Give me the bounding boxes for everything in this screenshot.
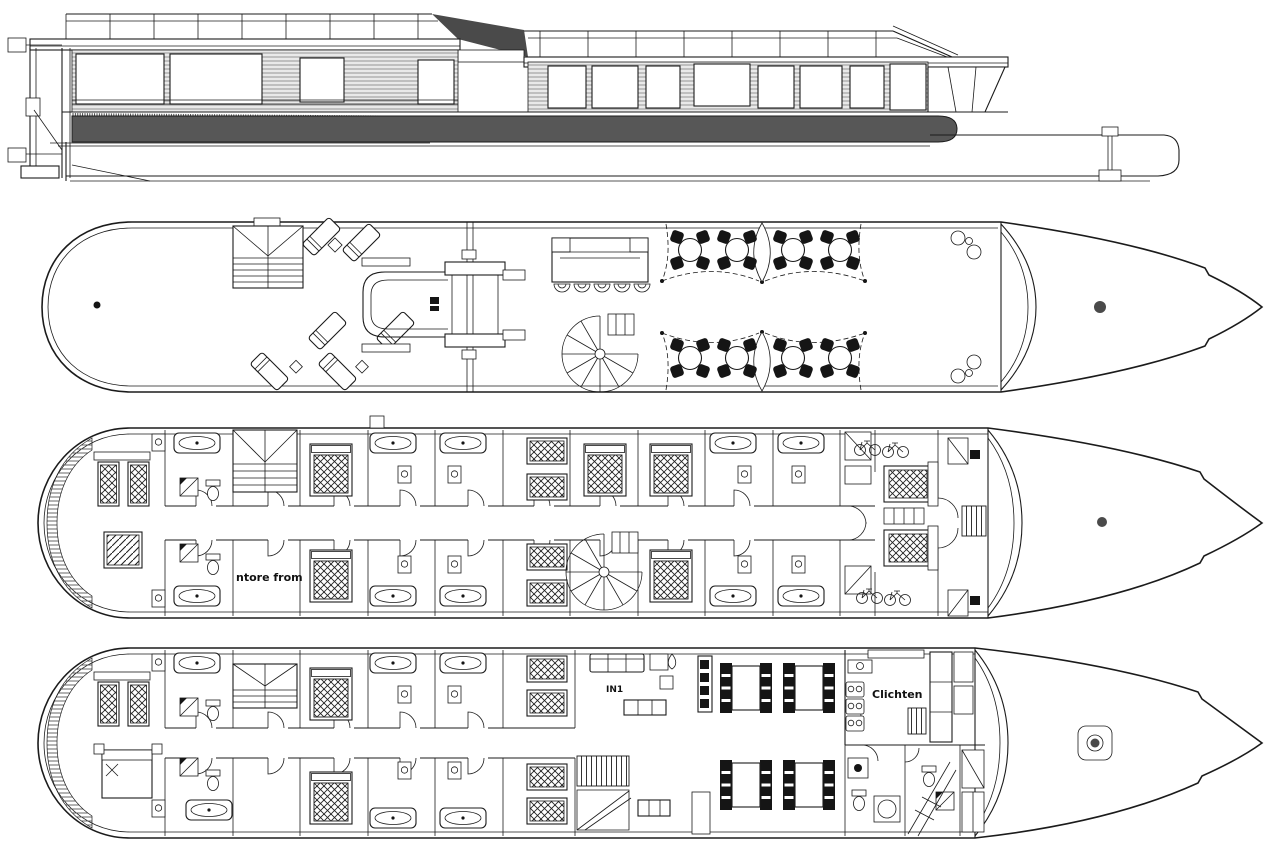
lower-deck-plan: IN1 Clichten — [38, 648, 1262, 838]
ship-plans-drawing: ntore from — [0, 0, 1286, 855]
sink-icon — [152, 434, 165, 451]
bathtub-icon — [778, 586, 824, 606]
bathtub-icon — [174, 586, 220, 606]
bathtub-icon — [174, 653, 220, 673]
bathtub-icon — [710, 433, 756, 453]
sink-icon — [448, 556, 461, 573]
dining-table-icon — [783, 760, 835, 810]
bathtub-icon — [440, 433, 486, 453]
sink-icon — [792, 556, 805, 573]
armchair-icon — [650, 654, 668, 670]
dining-table-icon — [783, 663, 835, 713]
barge-plan-sheet: ntore from — [0, 0, 1286, 855]
double-bed-icon — [650, 444, 692, 496]
deck-note-label: ntore from — [236, 571, 303, 584]
deck-vent — [370, 416, 384, 428]
sink-icon — [448, 466, 461, 483]
bathtub-icon — [440, 808, 486, 828]
sink-icon — [398, 762, 411, 779]
sun-deck-plan — [42, 217, 1262, 392]
twin-bed-icon — [98, 682, 119, 726]
sink-icon — [738, 556, 751, 573]
shower-icon — [180, 478, 198, 496]
bathtub-icon — [440, 586, 486, 606]
hull-outline — [42, 222, 1262, 392]
side-elevation-view — [8, 14, 1179, 181]
twin-bed-icon — [527, 474, 567, 500]
twin-bed-icon — [527, 544, 567, 570]
sink-icon — [152, 590, 165, 607]
dining-table-icon — [720, 760, 772, 810]
toilet-icon — [206, 770, 220, 791]
wheelhouse-windshield — [928, 67, 1005, 112]
sink-icon — [792, 466, 805, 483]
sofa-icon — [624, 700, 666, 715]
hull-band — [72, 116, 957, 142]
twin-bed-icon — [98, 462, 119, 506]
shower-icon — [180, 698, 198, 716]
bathtub-icon — [370, 653, 416, 673]
double-bed-icon — [650, 550, 692, 602]
sink-icon — [738, 466, 751, 483]
bathtub-icon — [440, 653, 486, 673]
shower-icon — [936, 792, 954, 810]
companion-ladder — [962, 506, 986, 536]
stern-fitting — [94, 302, 101, 309]
double-bed-icon — [584, 444, 626, 496]
double-bed-icon — [310, 444, 352, 496]
owner-cabin — [94, 744, 162, 798]
mast-base — [1097, 517, 1107, 527]
staircase — [233, 664, 297, 708]
double-bed-icon — [107, 535, 139, 565]
sink-icon — [398, 466, 411, 483]
toilet-icon — [206, 700, 220, 721]
twin-bed-icon — [527, 656, 567, 682]
sink-icon — [448, 686, 461, 703]
buffet — [692, 792, 710, 834]
bathtub-icon — [370, 808, 416, 828]
twin-bed-icon — [527, 764, 567, 790]
roof-step — [458, 50, 524, 62]
mast-base — [1094, 301, 1106, 313]
bathtub-icon — [778, 433, 824, 453]
double-bed-icon — [310, 668, 352, 720]
twin-bed-icon — [128, 682, 149, 726]
double-bed-icon — [310, 772, 352, 824]
dining-table-icon — [720, 663, 772, 713]
stern-gear — [8, 38, 70, 178]
galley-label: Clichten — [872, 688, 923, 701]
staircase — [233, 430, 297, 492]
twin-bed-icon — [527, 690, 567, 716]
sofa-icon — [590, 654, 644, 672]
lounge-label: IN1 — [606, 685, 623, 695]
bow-hatch — [1078, 726, 1112, 760]
upper-railing-aft — [62, 14, 458, 39]
bow-mast — [1099, 127, 1121, 181]
sink-icon — [398, 556, 411, 573]
sink-icon — [152, 800, 165, 817]
bathtub-icon — [370, 586, 416, 606]
side-table-icon — [660, 676, 673, 689]
sink-icon — [448, 762, 461, 779]
twin-bed-icon — [128, 462, 149, 506]
bathtub-icon — [710, 586, 756, 606]
staircase — [233, 218, 303, 288]
shower-icon — [180, 544, 198, 562]
bathtub-icon — [370, 433, 416, 453]
twin-bed-icon — [527, 438, 567, 464]
toilet-icon — [206, 554, 220, 575]
sink-icon — [398, 686, 411, 703]
twin-bed-icon — [527, 580, 567, 606]
sink-icon — [152, 654, 165, 671]
toilet-icon — [852, 790, 866, 811]
toilet-icon — [922, 766, 936, 787]
bathtub-icon — [186, 800, 232, 820]
double-bed-icon — [310, 550, 352, 602]
bathtub-icon — [174, 433, 220, 453]
toilet-icon — [206, 480, 220, 501]
cabin-deck-plan: ntore from — [38, 416, 1262, 618]
aft-roof-slab — [30, 39, 460, 50]
upper-railing-fore — [524, 26, 1000, 60]
deck-bar — [552, 238, 650, 292]
twin-bed-icon — [527, 798, 567, 824]
shower-icon — [180, 758, 198, 776]
